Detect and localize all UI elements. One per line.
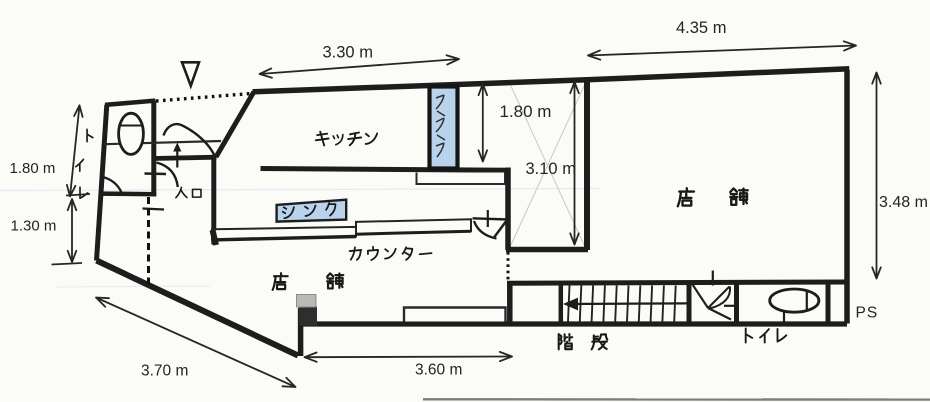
svg-text:3.30 m: 3.30 m bbox=[323, 44, 373, 62]
svg-text:1.30 m: 1.30 m bbox=[11, 218, 57, 235]
svg-text:3.70 m: 3.70 m bbox=[141, 363, 188, 380]
svg-text:PS: PS bbox=[856, 305, 879, 322]
svg-text:1.80 m: 1.80 m bbox=[500, 102, 552, 121]
svg-text:4.35 m: 4.35 m bbox=[676, 19, 726, 37]
svg-text:3.10 m: 3.10 m bbox=[526, 160, 576, 178]
svg-text:3.48 m: 3.48 m bbox=[879, 194, 928, 211]
svg-text:1.80 m: 1.80 m bbox=[10, 160, 56, 177]
svg-text:3.60 m: 3.60 m bbox=[415, 362, 462, 379]
